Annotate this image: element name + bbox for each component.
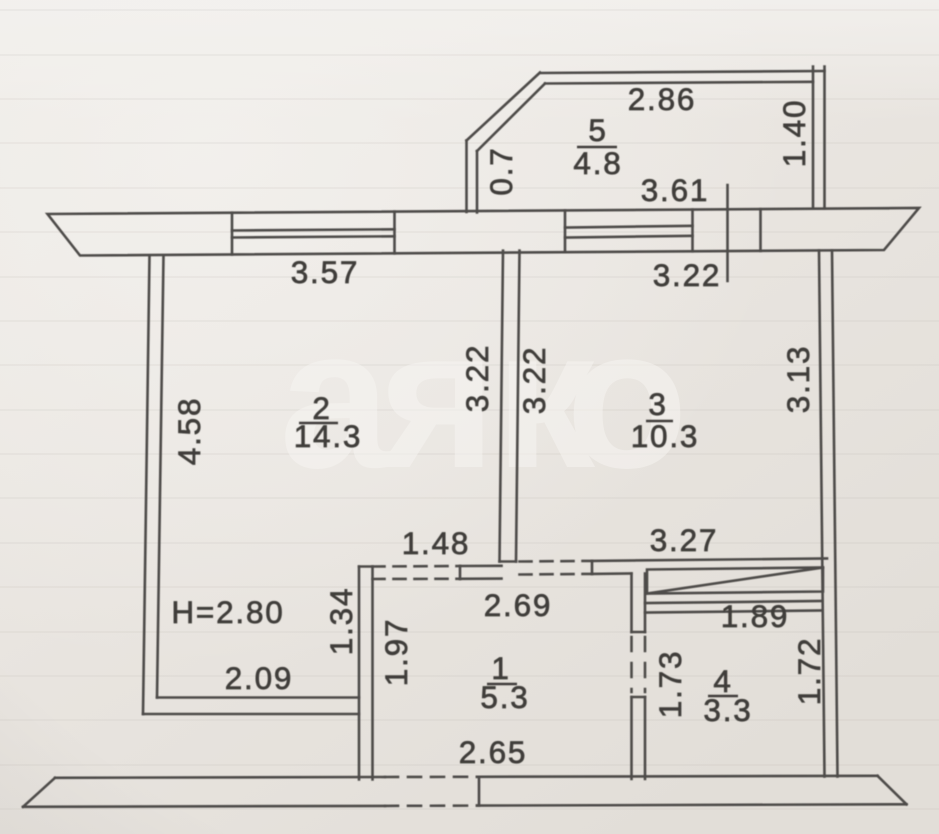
svg-text:1.89: 1.89	[721, 598, 790, 634]
svg-text:4.58: 4.58	[171, 397, 207, 466]
svg-text:3.22: 3.22	[516, 346, 552, 415]
svg-text:10.3: 10.3	[631, 418, 700, 454]
svg-text:2.86: 2.86	[628, 81, 697, 117]
svg-text:1.40: 1.40	[776, 99, 812, 168]
svg-text:1.48: 1.48	[402, 525, 471, 561]
svg-text:5.3: 5.3	[480, 679, 529, 715]
svg-text:3.61: 3.61	[641, 172, 710, 208]
svg-text:3.13: 3.13	[780, 345, 816, 414]
svg-text:1.97: 1.97	[378, 618, 414, 687]
svg-text:2.09: 2.09	[225, 660, 294, 696]
svg-text:2.69: 2.69	[484, 587, 553, 623]
svg-text:14.3: 14.3	[294, 418, 363, 454]
svg-text:3.3: 3.3	[703, 692, 752, 728]
svg-text:1.34: 1.34	[323, 587, 359, 656]
svg-text:4.8: 4.8	[573, 145, 622, 181]
svg-text:3.27: 3.27	[650, 522, 719, 558]
svg-text:3.57: 3.57	[291, 254, 360, 290]
svg-text:3.22: 3.22	[653, 257, 722, 293]
svg-text:3.22: 3.22	[459, 344, 495, 413]
svg-text:0.7: 0.7	[483, 146, 519, 195]
svg-text:3: 3	[648, 386, 667, 422]
svg-text:2.65: 2.65	[459, 734, 528, 770]
svg-text:5: 5	[588, 112, 607, 148]
svg-text:о: о	[566, 287, 688, 510]
svg-text:1.73: 1.73	[652, 650, 688, 719]
svg-text:H=2.80: H=2.80	[171, 594, 284, 630]
svg-text:1.72: 1.72	[791, 637, 827, 706]
svg-text:а: а	[279, 287, 392, 510]
